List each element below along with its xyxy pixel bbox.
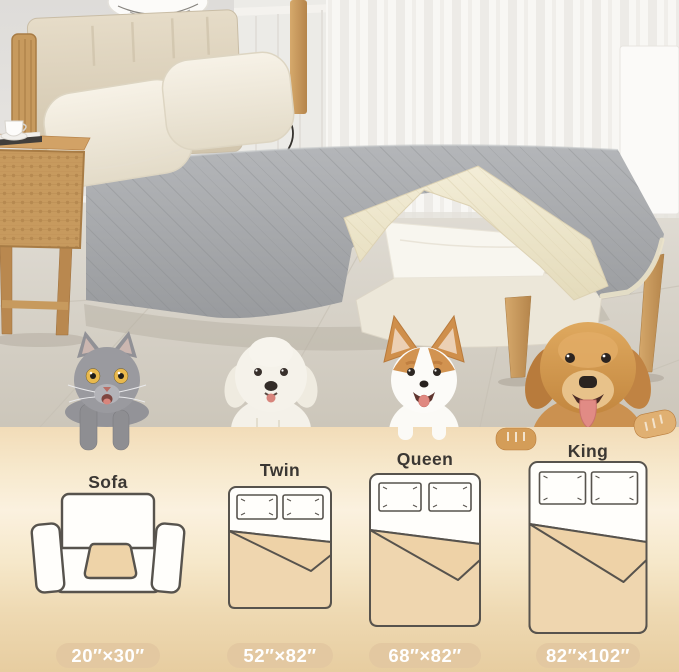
- pillow: [592, 472, 638, 504]
- golden-eye: [601, 353, 611, 363]
- blanket: [229, 531, 331, 608]
- corgi-tongue: [419, 395, 430, 407]
- corgi-paw: [398, 418, 413, 440]
- pets-row: [0, 300, 679, 472]
- pillow: [283, 495, 323, 519]
- pillow: [237, 495, 277, 519]
- golden-eye: [565, 353, 575, 363]
- pillow: [540, 472, 586, 504]
- king-bed-diagram: [528, 460, 649, 635]
- sofa-arm-right: [151, 523, 185, 593]
- size-dimensions-pill: 52″×82″: [227, 643, 333, 668]
- sofa-diagram: [30, 490, 186, 600]
- corgi-nose: [420, 381, 429, 388]
- size-dimensions: 52″×82″: [243, 645, 316, 667]
- dog-eye: [280, 368, 288, 376]
- golden-nose: [579, 376, 597, 388]
- dog-tongue: [267, 394, 276, 403]
- queen-bed-diagram: [368, 472, 482, 628]
- twin-bed-diagram: [227, 485, 333, 610]
- pillow: [379, 483, 421, 511]
- blanket: [370, 530, 480, 626]
- cat-paw: [113, 410, 129, 450]
- corgi: [384, 316, 464, 464]
- corgi-paw: [432, 420, 446, 440]
- cat-tongue: [103, 399, 111, 405]
- sofa-arm-left: [31, 523, 65, 593]
- dog-nose: [265, 381, 278, 391]
- pillow: [429, 483, 471, 511]
- golden-retriever: [496, 322, 678, 472]
- size-dimensions-pill: 20″×30″: [56, 643, 160, 668]
- white-fluffy-dog: [221, 337, 322, 462]
- cat-paw: [80, 404, 97, 450]
- size-dimensions: 82″×102″: [546, 645, 630, 667]
- blanket: [530, 524, 647, 633]
- golden-paw: [496, 428, 536, 450]
- size-dimensions: 68″×82″: [388, 645, 461, 667]
- dog-eye: [254, 368, 262, 376]
- pillow-right: [160, 50, 297, 153]
- nightstand-door: [0, 150, 84, 248]
- sofa-blanket-pad: [85, 544, 136, 578]
- product-image: Sofa 20″×30″ Twin: [0, 0, 679, 672]
- gray-cat: [65, 331, 149, 450]
- size-dimensions-pill: 68″×82″: [369, 643, 481, 668]
- corgi-eye: [407, 368, 415, 376]
- size-dimensions-pill: 82″×102″: [536, 643, 640, 668]
- golden-paw: [632, 408, 678, 440]
- corgi-eye: [433, 368, 441, 376]
- size-dimensions: 20″×30″: [71, 645, 144, 667]
